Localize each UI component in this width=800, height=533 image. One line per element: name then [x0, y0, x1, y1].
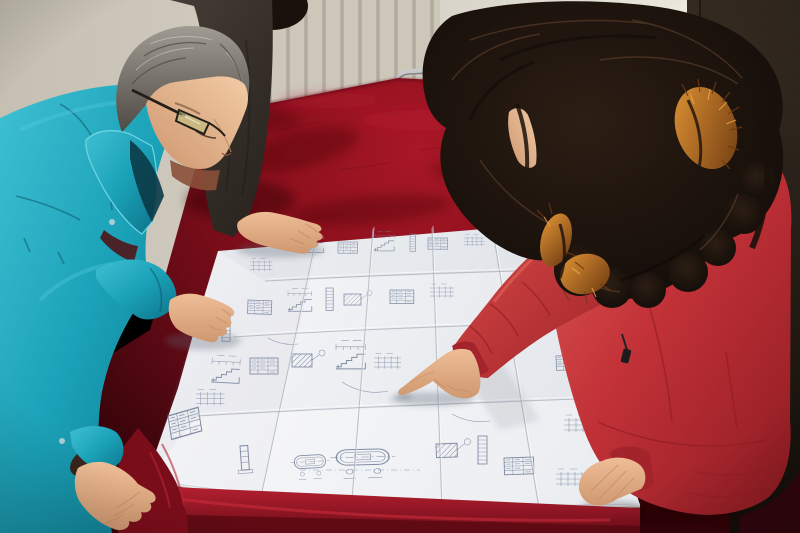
photo-blueprint-review — [0, 0, 800, 533]
scene-canvas — [0, 0, 800, 533]
vignette — [0, 0, 800, 533]
